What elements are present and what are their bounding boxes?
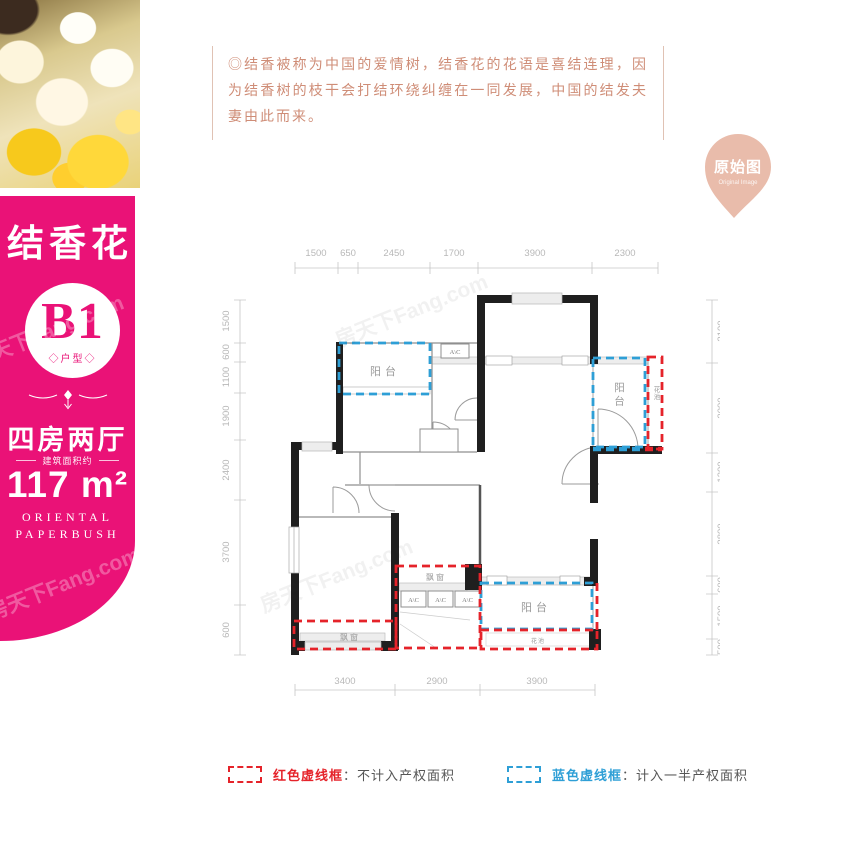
blue-legend-label: 蓝色虚线框	[552, 765, 622, 784]
svg-text:1500: 1500	[305, 248, 326, 259]
bay-window-label: 飘窗	[426, 572, 446, 582]
original-image-stamp: 原始图 Original Image	[695, 125, 785, 225]
svg-text:1900: 1900	[221, 405, 232, 426]
svg-text:500: 500	[716, 639, 720, 655]
unit-badge-code: B1	[25, 296, 120, 348]
blue-legend-desc: ：计入一半产权面积	[622, 765, 748, 784]
stamp-title: 原始图	[714, 158, 762, 176]
svg-text:3400: 3400	[334, 676, 355, 687]
sidebar: 结香花 B1 ◇户型◇ 四房两厅 建筑面积约 117 m² ORIENTAL P…	[0, 196, 135, 641]
stamp-subtitle: Original Image	[718, 180, 758, 186]
red-dashed-legend-icon	[228, 766, 262, 783]
watermark: 房天下Fang.com	[0, 539, 135, 628]
svg-text:2100: 2100	[716, 320, 720, 341]
red-legend-desc: ：不计入产权面积	[343, 765, 455, 784]
svg-text:1100: 1100	[221, 367, 232, 387]
floorplan-page: 结香花 B1 ◇户型◇ 四房两厅 建筑面积约 117 m² ORIENTAL P…	[0, 0, 850, 843]
svg-text:3000: 3000	[716, 397, 720, 418]
divider-line	[16, 460, 36, 461]
decorative-flourish-icon	[23, 388, 113, 412]
svg-text:650: 650	[340, 248, 356, 259]
balcony-label: 阳台	[521, 600, 551, 614]
svg-text:1500: 1500	[716, 605, 720, 626]
svg-text:1300: 1300	[716, 461, 720, 482]
floor-plan: A\C A\C A\C A\C 阳台 阳台 飘窗 飘窗 花池	[215, 225, 720, 710]
ac-label: A\C	[408, 597, 419, 604]
red-legend-label: 红色虚线框	[273, 765, 343, 784]
svg-text:600: 600	[221, 622, 232, 638]
svg-text:600: 600	[716, 577, 720, 593]
legend: 红色虚线框 ：不计入产权面积 蓝色虚线框 ：计入一半产权面积	[228, 765, 788, 784]
bay-window-label: 飘窗	[340, 632, 360, 642]
flower-name-title: 结香花	[0, 213, 135, 267]
svg-text:3900: 3900	[524, 248, 545, 259]
svg-text:2450: 2450	[383, 248, 404, 259]
blue-dashed-legend-icon	[507, 766, 541, 783]
svg-text:2900: 2900	[426, 676, 447, 687]
svg-text:2400: 2400	[221, 459, 232, 480]
svg-text:1700: 1700	[443, 248, 464, 259]
dimension-lines	[234, 262, 718, 696]
flower-description: ◎结香被称为中国的爱情树，结香花的花语是喜结连理，因为结香树的枝干会打结环绕纠缠…	[212, 46, 664, 140]
unit-badge-type-label: ◇户型◇	[25, 350, 120, 365]
ac-label: A\C	[435, 597, 446, 604]
svg-text:2300: 2300	[614, 248, 635, 259]
svg-text:600: 600	[221, 344, 232, 360]
unit-badge: B1 ◇户型◇	[25, 283, 120, 378]
layout-name: 四房两厅	[0, 418, 135, 457]
flower-bed-label: 花池	[531, 637, 545, 645]
english-name: ORIENTAL PAPERBUSH	[0, 509, 135, 543]
paperbush-flower-photo	[0, 0, 140, 188]
svg-text:2800: 2800	[716, 523, 720, 544]
blue-dashed-areas	[339, 343, 645, 629]
area-value: 117 m²	[0, 464, 135, 506]
ac-label: A\C	[450, 349, 461, 356]
balcony-label: 阳台	[370, 364, 400, 378]
svg-text:3900: 3900	[526, 676, 547, 687]
divider-line	[99, 460, 119, 461]
svg-text:1500: 1500	[221, 310, 232, 331]
ac-label: A\C	[462, 597, 473, 604]
svg-text:3700: 3700	[221, 541, 232, 562]
